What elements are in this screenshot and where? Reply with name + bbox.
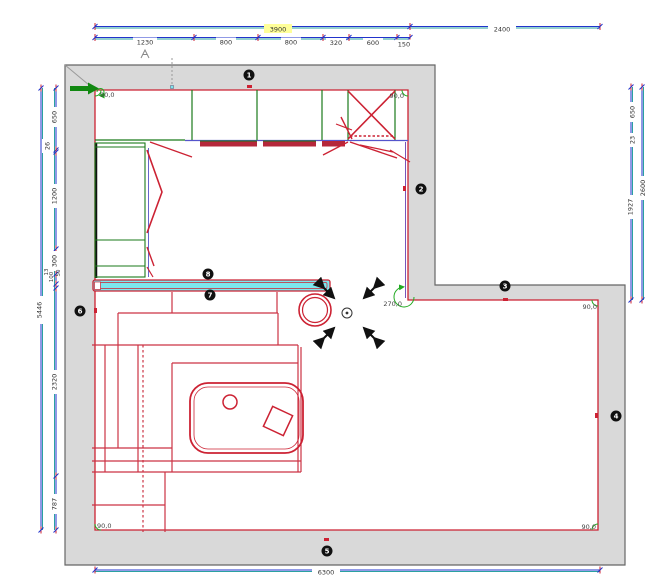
bathtub-table[interactable] [190,383,303,453]
svg-text:4: 4 [614,413,619,421]
dim-top-seg-4[interactable]: 320 [330,39,342,47]
countertop[interactable] [93,280,330,291]
svg-text:8: 8 [206,271,211,279]
dim-right-seg-1[interactable]: 650 [629,106,637,118]
dim-top-seg-5[interactable]: 600 [367,39,379,47]
dimension-left: 5446 650 26 1200 300 13 100 50 2320 [34,85,62,534]
dim-left-seg-6[interactable]: 100 [49,271,55,282]
wall-cabinet-fronts[interactable] [150,141,348,158]
wall-badge-1[interactable]: 1 [244,70,255,81]
wall-badge-6[interactable]: 6 [75,306,86,317]
dim-top-seg-1[interactable]: 1230 [137,39,154,47]
svg-text:3: 3 [503,283,508,291]
tilted-square-item [263,406,292,435]
dim-left-seg-3[interactable]: 1200 [51,188,59,205]
dimension-bottom: 6300 [93,567,603,577]
floorplan-canvas[interactable]: 3900 2400 1230 800 800 320 600 150 5446 … [0,0,650,580]
dim-left-seg-8[interactable]: 2320 [51,374,59,391]
dim-right-seg-3[interactable]: 1927 [627,199,635,216]
corner-cabinet[interactable] [336,91,410,162]
ceiling-marker-icon [141,50,149,58]
wall-badge-3[interactable]: 3 [500,281,511,292]
dimension-top: 3900 2400 1230 800 800 320 600 150 [93,23,603,49]
angle-label-topleft: 90,0 [100,91,114,99]
selected-round-item[interactable] [299,294,331,326]
angle-label-step-right: 90,0 [583,303,597,311]
svg-text:1: 1 [247,72,252,80]
wall-cabinet-run[interactable] [95,90,408,141]
floorplan-viewport[interactable]: 3900 2400 1230 800 800 320 600 150 5446 … [0,0,650,580]
dim-top-seg-6[interactable]: 150 [398,41,410,49]
wall-badge-4[interactable]: 4 [611,411,622,422]
dim-top-seg-3[interactable]: 800 [285,39,297,47]
dim-left-seg-7[interactable]: 50 [56,269,62,276]
dim-right-total[interactable]: 2600 [639,180,647,197]
dim-top-total-1[interactable]: 3900 [270,26,287,34]
angle-label-step-corner: 270,0 [383,300,402,308]
svg-text:6: 6 [78,308,83,316]
rotate-center-icon [342,308,352,318]
dimension-right: 650 23 1927 2600 [625,84,647,304]
dim-left-total[interactable]: 5446 [36,302,44,319]
wall-badge-2[interactable]: 2 [416,184,427,195]
tall-cabinet-column[interactable] [95,143,162,277]
drain-circle [223,395,237,409]
dim-left-seg-2[interactable]: 26 [44,142,52,150]
svg-text:5: 5 [325,548,330,556]
wall-badge-5[interactable]: 5 [322,546,333,557]
dim-top-total-2[interactable]: 2400 [494,26,511,34]
dim-right-seg-2[interactable]: 23 [629,136,637,144]
wall-badge-8[interactable]: 8 [203,269,214,280]
dim-left-seg-1[interactable]: 650 [51,111,59,123]
angle-label-bottomleft: 90,0 [97,522,111,530]
dim-left-seg-9[interactable]: 787 [51,498,59,510]
dim-bottom-total[interactable]: 6300 [318,569,335,577]
svg-text:7: 7 [208,292,213,300]
dim-top-seg-2[interactable]: 800 [220,39,232,47]
angle-label-bottomright: 90,0 [582,523,596,531]
wall-badge-7[interactable]: 7 [205,290,216,301]
angle-label-topright: 90,0 [390,92,404,100]
svg-text:2: 2 [419,186,424,194]
dim-left-seg-4[interactable]: 300 [51,255,59,267]
